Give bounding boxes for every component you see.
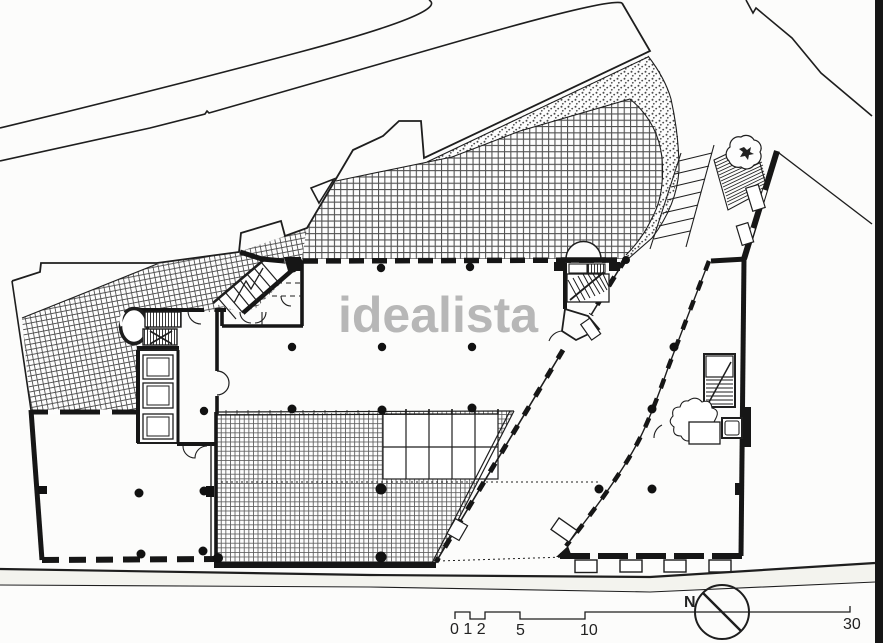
- svg-text:10: 10: [580, 622, 598, 639]
- svg-text:30: 30: [843, 616, 861, 633]
- svg-text:5: 5: [516, 622, 525, 639]
- svg-text:N: N: [684, 594, 696, 611]
- svg-text:idealista: idealista: [338, 287, 539, 343]
- svg-text:0 1 2: 0 1 2: [450, 621, 486, 638]
